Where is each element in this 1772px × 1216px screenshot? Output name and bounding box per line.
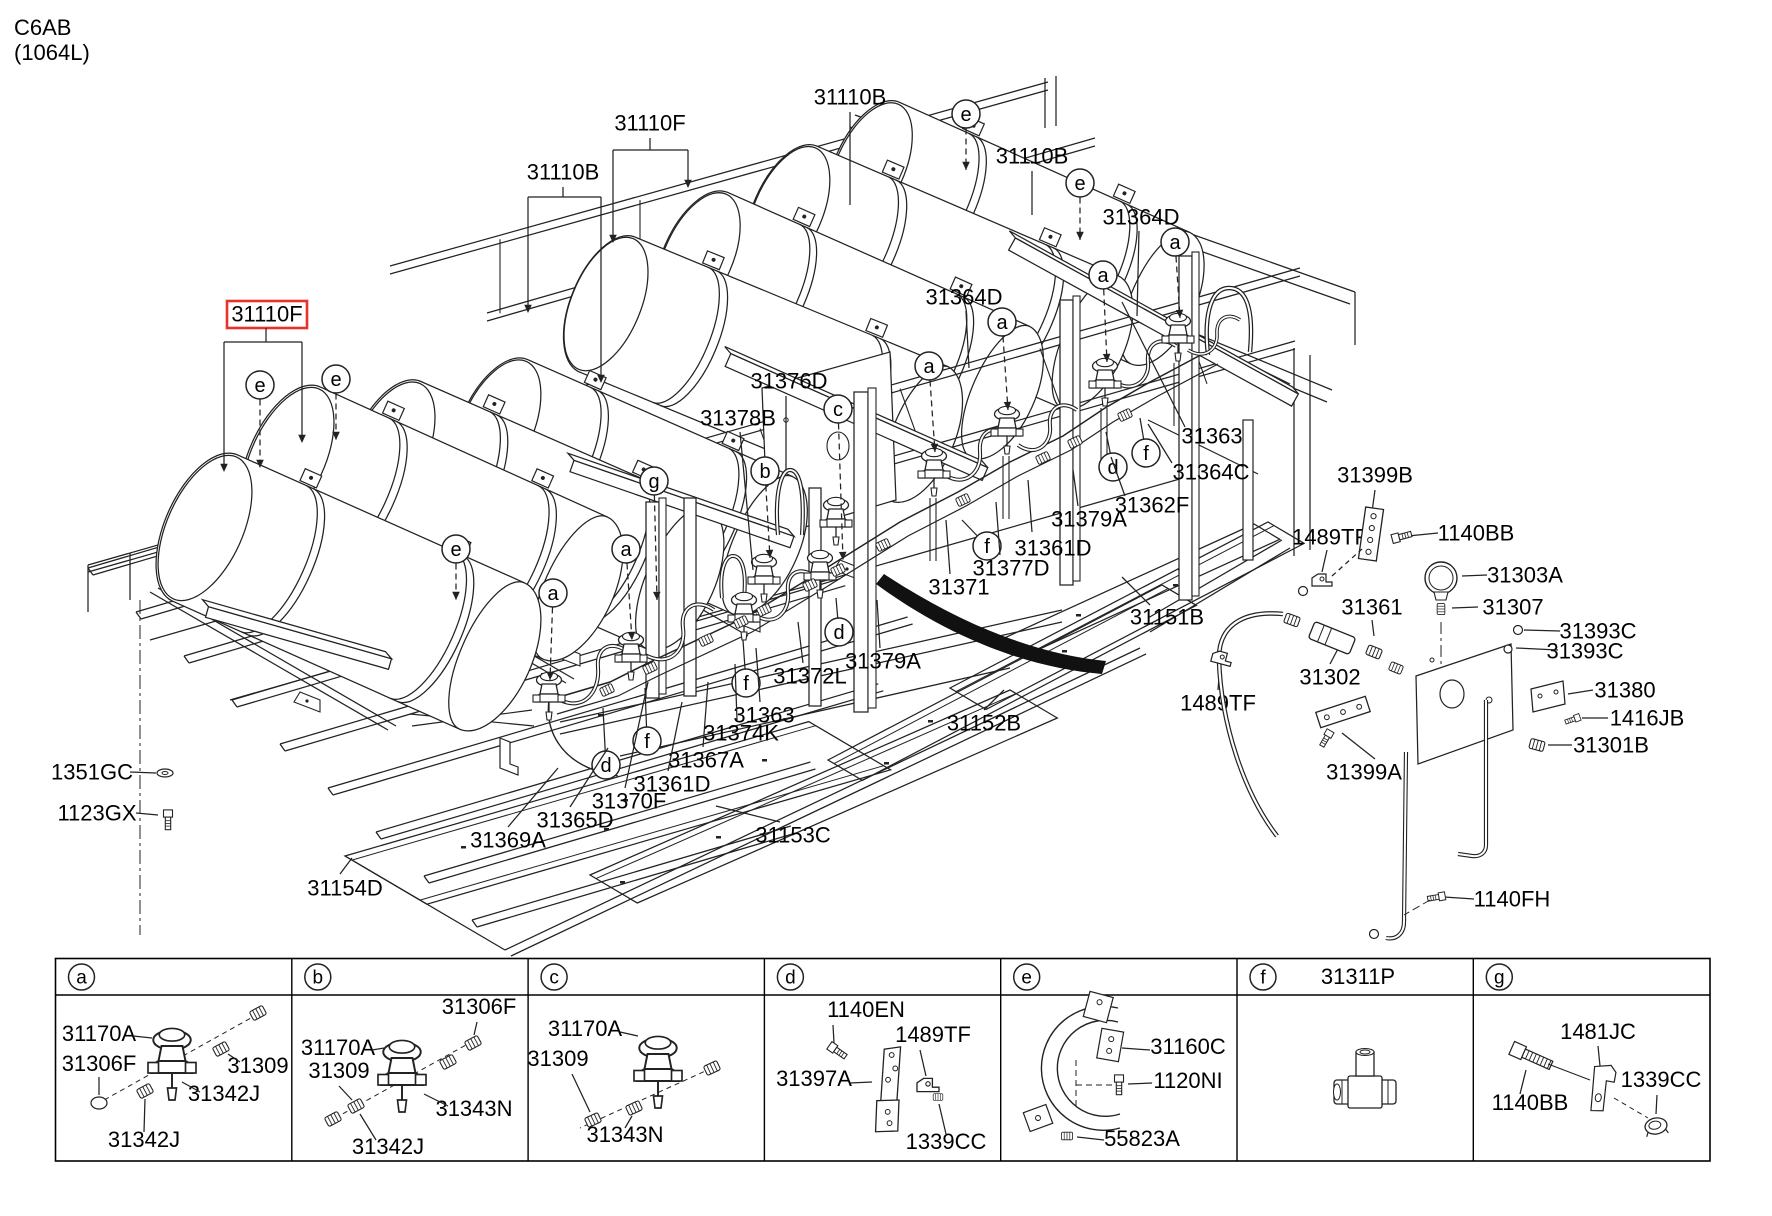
svg-text:1120NI: 1120NI [1153, 1068, 1222, 1093]
svg-text:1351GC: 1351GC [51, 760, 133, 785]
svg-text:31376D: 31376D [750, 369, 827, 394]
svg-text:31374K: 31374K [703, 721, 779, 746]
svg-text:31379A: 31379A [845, 649, 921, 674]
svg-text:31369A: 31369A [470, 828, 546, 853]
svg-text:e: e [254, 375, 265, 397]
svg-text:a: a [76, 968, 87, 989]
svg-text:31363: 31363 [1181, 424, 1242, 449]
svg-text:31393C: 31393C [1546, 639, 1623, 664]
svg-text:31303A: 31303A [1487, 563, 1563, 588]
svg-text:g: g [648, 471, 659, 493]
svg-text:31399A: 31399A [1326, 760, 1402, 785]
svg-text:31342J: 31342J [188, 1081, 260, 1106]
svg-text:31397A: 31397A [776, 1066, 852, 1091]
svg-text:31343N: 31343N [586, 1122, 663, 1147]
svg-text:1123GX: 1123GX [57, 801, 136, 826]
svg-text:31170A: 31170A [301, 1035, 376, 1060]
svg-text:31309: 31309 [308, 1058, 369, 1083]
svg-text:e: e [960, 104, 971, 126]
svg-text:31364C: 31364C [1172, 460, 1249, 485]
svg-text:f: f [644, 731, 650, 753]
svg-text:31170A: 31170A [548, 1016, 623, 1041]
svg-text:31152B: 31152B [947, 711, 1021, 736]
svg-text:31110B: 31110B [814, 85, 887, 110]
svg-text:31342J: 31342J [352, 1134, 424, 1159]
svg-text:1140BB: 1140BB [1438, 521, 1515, 546]
svg-text:e: e [450, 539, 461, 561]
svg-text:31379A: 31379A [1051, 507, 1127, 532]
svg-text:31160C: 31160C [1150, 1034, 1226, 1059]
svg-text:e: e [1074, 173, 1085, 195]
svg-text:c: c [833, 399, 843, 421]
svg-text:d: d [785, 968, 796, 989]
svg-text:31307: 31307 [1482, 595, 1543, 620]
svg-text:31154D: 31154D [307, 876, 382, 901]
svg-text:31309: 31309 [227, 1053, 288, 1078]
svg-text:31170A: 31170A [62, 1021, 137, 1046]
svg-text:f: f [743, 673, 749, 695]
svg-text:31364D: 31364D [925, 285, 1002, 310]
svg-text:31311P: 31311P [1321, 964, 1395, 989]
svg-text:31301B: 31301B [1573, 733, 1649, 758]
svg-text:31110B: 31110B [996, 144, 1069, 169]
svg-text:a: a [547, 583, 559, 605]
svg-text:31151B: 31151B [1130, 605, 1204, 630]
svg-text:1140EN: 1140EN [827, 997, 905, 1022]
svg-text:a: a [1097, 265, 1109, 287]
svg-text:g: g [1494, 968, 1505, 989]
svg-text:1489TF: 1489TF [1180, 691, 1256, 716]
svg-text:31302: 31302 [1299, 665, 1360, 690]
svg-text:1489TF: 1489TF [895, 1022, 971, 1047]
svg-text:d: d [1107, 457, 1118, 479]
svg-text:e: e [1021, 968, 1032, 989]
svg-text:1481JC: 1481JC [1560, 1019, 1636, 1044]
svg-text:(1064L): (1064L) [14, 40, 90, 65]
svg-text:d: d [833, 622, 844, 644]
svg-text:f: f [1143, 443, 1149, 465]
svg-text:a: a [1169, 232, 1181, 254]
svg-text:1140BB: 1140BB [1492, 1090, 1569, 1115]
svg-text:31110F: 31110F [231, 302, 302, 327]
svg-text:31343N: 31343N [435, 1096, 512, 1121]
svg-text:31371: 31371 [928, 575, 989, 600]
svg-text:1339CC: 1339CC [1621, 1067, 1702, 1092]
svg-text:31367A: 31367A [668, 748, 744, 773]
svg-text:55823A: 55823A [1104, 1126, 1180, 1151]
svg-text:a: a [923, 356, 935, 378]
svg-text:C6AB: C6AB [14, 15, 71, 40]
svg-text:e: e [330, 369, 341, 391]
svg-text:b: b [313, 968, 324, 989]
svg-text:31153C: 31153C [755, 823, 831, 848]
svg-text:31399B: 31399B [1337, 463, 1413, 488]
svg-text:c: c [549, 968, 559, 989]
svg-text:b: b [759, 461, 770, 483]
svg-text:31361: 31361 [1341, 595, 1402, 620]
svg-text:1489TF: 1489TF [1292, 525, 1368, 550]
svg-text:31309: 31309 [527, 1046, 588, 1071]
svg-text:31110B: 31110B [527, 160, 600, 185]
svg-text:31306F: 31306F [62, 1051, 137, 1076]
svg-text:31380: 31380 [1594, 678, 1655, 703]
svg-text:a: a [996, 312, 1008, 334]
svg-text:f: f [1260, 968, 1266, 989]
svg-text:31110F: 31110F [614, 111, 685, 136]
svg-text:31306F: 31306F [442, 994, 517, 1019]
svg-text:1416JB: 1416JB [1610, 706, 1685, 731]
svg-text:31364D: 31364D [1102, 205, 1179, 230]
svg-text:31372L: 31372L [773, 664, 846, 689]
svg-text:31378B: 31378B [700, 406, 776, 431]
svg-text:31365D: 31365D [536, 808, 613, 833]
svg-text:1140FH: 1140FH [1474, 887, 1551, 912]
svg-text:a: a [620, 539, 632, 561]
